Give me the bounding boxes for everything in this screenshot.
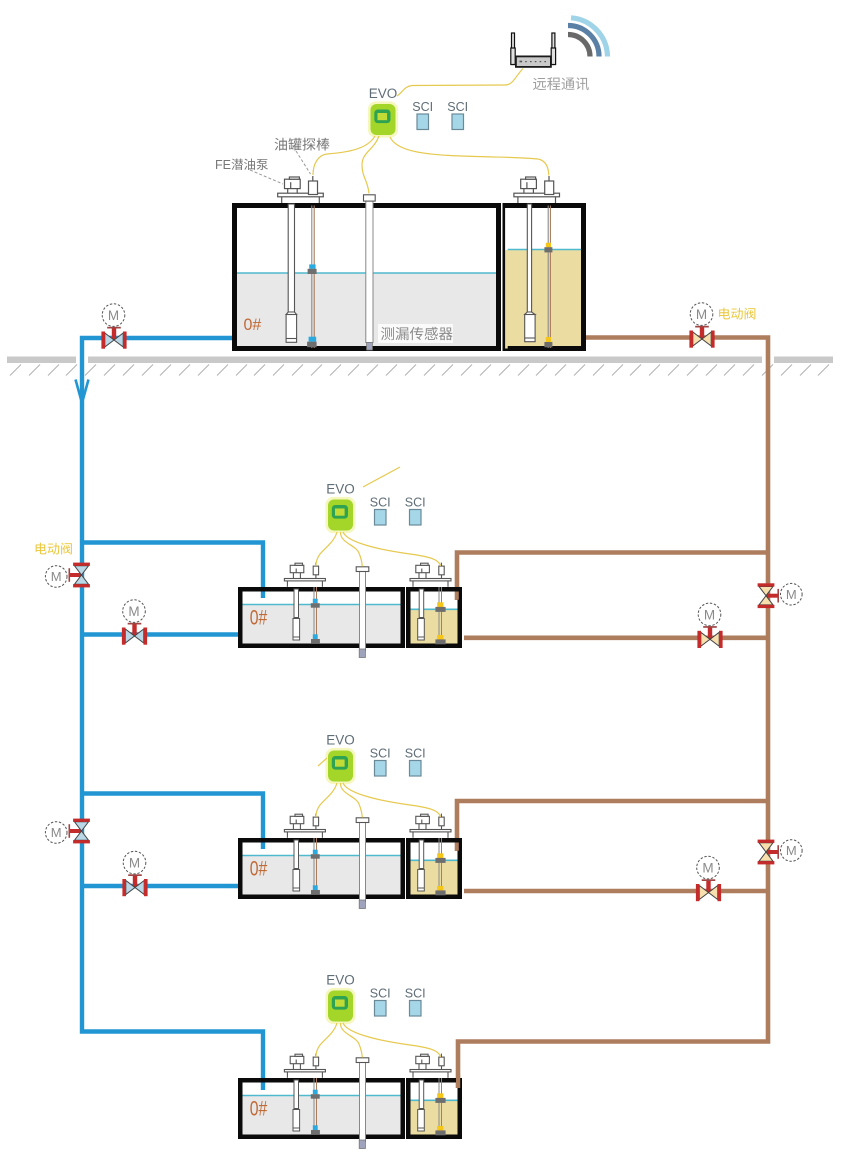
- svg-text:0#: 0#: [244, 316, 263, 334]
- svg-text:FE: FE: [215, 158, 231, 172]
- svg-text:0#: 0#: [250, 607, 268, 630]
- svg-text:0#: 0#: [250, 1098, 268, 1121]
- svg-text:0#: 0#: [250, 858, 268, 881]
